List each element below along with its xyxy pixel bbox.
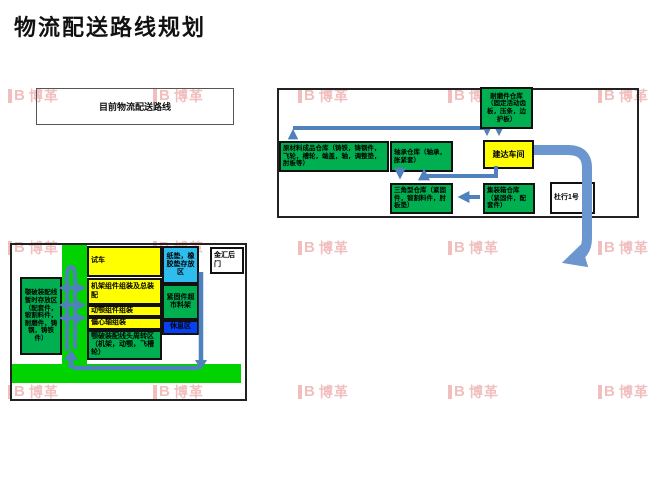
current-route-label: 目前物流配送路线 xyxy=(36,88,234,125)
jaw-assembly-area: 动颚组件组装 xyxy=(87,305,162,317)
frame-assembly-area: 机架组件组装及总装配 xyxy=(87,278,162,305)
boge-logo-icon: B xyxy=(448,385,465,399)
boge-watermark: B博革 xyxy=(448,238,499,258)
warehouse-wear-parts: 耐磨件仓库（固定活动齿板，压条，边护板） xyxy=(480,87,533,129)
boge-logo-icon: B xyxy=(598,385,615,399)
fastener-market-rack: 紧固件超市料架 xyxy=(162,284,199,320)
test-run-area: 试车 xyxy=(87,246,162,277)
boge-logo-icon: B xyxy=(598,241,615,255)
boge-watermark: B博革 xyxy=(448,382,499,402)
boge-watermark: B博革 xyxy=(598,238,649,258)
warehouse-raw-material: 原材料成品仓库（铸铁，铸钢件，飞轮，槽轮，端盖，轴，调整垫，肘板等） xyxy=(279,141,389,172)
page-title: 物流配送路线规划 xyxy=(14,10,206,42)
boge-logo-icon: B xyxy=(298,385,315,399)
boge-watermark: B博革 xyxy=(298,238,349,258)
warehouse-bearing: 轴承仓库（轴承，胀紧套） xyxy=(390,141,453,172)
staging-area: 颚破装配线暂时存放区（配套件，锻割料件，耐磨件，铸钢，铸铁件） xyxy=(20,277,62,355)
slide: 物流配送路线规划 B博革 B博革 B博革 B博革 B博革 B博革 B博革 B博革… xyxy=(0,0,660,495)
aisle-bottom xyxy=(12,364,241,383)
jinhui-back-gate: 金汇后门 xyxy=(210,247,244,274)
warehouse-triangle: 三角型仓库（紧固件，锻割料件，肘板垫） xyxy=(390,183,453,214)
boge-watermark: B博革 xyxy=(298,382,349,402)
boge-watermark: B博革 xyxy=(598,382,649,402)
pads-storage-area: 纸垫，橡胶垫存放区 xyxy=(162,246,199,284)
turnover-area: 颚破装配线头周转区（机架，动颚，飞槽轮） xyxy=(87,330,162,360)
boge-logo-icon: B xyxy=(298,241,315,255)
boge-logo-icon: B xyxy=(448,241,465,255)
warehouse-container: 集装箱仓库（紧固件，配套件） xyxy=(483,183,535,214)
duhang-no1-building: 杜行1号 xyxy=(550,182,595,214)
aisle-vertical xyxy=(62,245,87,383)
boge-logo-icon: B xyxy=(8,89,25,103)
shaft-assembly-area: 偏心轴组装 xyxy=(87,317,162,330)
jianda-workshop: 建达车间 xyxy=(483,140,534,169)
jianda-plant-diagram: 耐磨件仓库（固定活动齿板，压条，边护板） 原材料成品仓库（铸铁，铸钢件，飞轮，槽… xyxy=(277,88,639,218)
rest-area: 休息区 xyxy=(162,320,199,335)
assembly-area-diagram: 颚破装配线暂时存放区（配套件，锻割料件，耐磨件，铸钢，铸铁件） 试车 机架组件组… xyxy=(10,243,247,401)
